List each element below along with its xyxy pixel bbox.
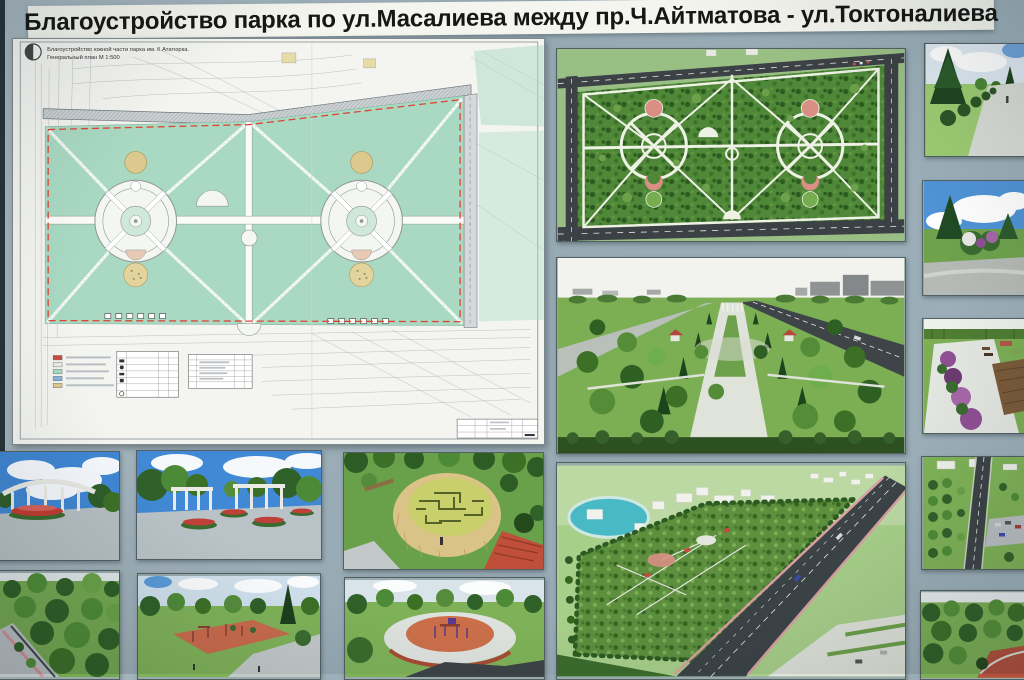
bush: [295, 630, 311, 646]
master-plan-render: [556, 48, 906, 242]
render-entrance-pergolas: [136, 450, 322, 560]
entrance-pergolas-svg: [137, 451, 321, 559]
flower-bushes-svg: [923, 181, 1024, 295]
board-edge-shadow: [0, 0, 5, 452]
legend-table-1: [117, 351, 179, 397]
general-plan-svg: Благоустройство южной части парка им. К.…: [13, 39, 544, 444]
render-aerial-corner: [0, 570, 120, 680]
walkway1-svg: [925, 44, 1024, 156]
render-aerial-road: [921, 456, 1024, 570]
sheet-header-line1: Благоустройство южной части парка им. К.…: [47, 46, 189, 53]
alley-deck-svg: [923, 319, 1024, 433]
path: [924, 257, 1024, 295]
playground2-svg: [345, 578, 544, 679]
master-plan-svg: [557, 49, 905, 241]
person: [1006, 96, 1009, 103]
axis-perspective-svg: [557, 258, 905, 453]
poster-title: Благоустройство парка по ул.Масалиева ме…: [24, 0, 998, 37]
adjacent-green-ne: [474, 45, 544, 127]
adjacent-green-e: [479, 131, 544, 322]
axis-perspective-render: [556, 257, 906, 454]
title-strip: Благоустройство парка по ул.Масалиева ме…: [28, 0, 994, 39]
render-playground-1: [137, 573, 321, 680]
aerial-overview-render: [556, 462, 906, 680]
aerial-overview-svg: [557, 463, 905, 679]
pergola-arc-svg: [0, 452, 119, 560]
aerial-road-svg: [922, 457, 1024, 569]
render-walkway-1: [924, 43, 1024, 157]
person: [440, 537, 443, 545]
bush: [976, 657, 988, 669]
labyrinth-svg: [344, 453, 543, 569]
red-path-park-svg: [921, 591, 1024, 679]
sheet-header-line2: Генеральный план М 1:500: [47, 54, 120, 61]
general-plan-sheet: Благоустройство южной части парка им. К.…: [12, 38, 545, 445]
render-flower-bushes: [922, 180, 1024, 296]
sky-strip: [921, 592, 1024, 602]
render-playground-2: [344, 577, 545, 680]
render-pergola-arc: [0, 451, 120, 561]
sky-blue-patch: [144, 576, 172, 588]
playground1-svg: [138, 574, 320, 679]
parking: [985, 515, 1024, 547]
aerial-corner-svg: [0, 571, 119, 679]
render-labyrinth: [343, 452, 544, 570]
east-road: [464, 94, 477, 328]
bench: [984, 353, 993, 356]
hedge-band: [924, 329, 1024, 339]
poster-photo: { "title": "Благоустройство парка по ул.…: [0, 0, 1024, 674]
play-circle: [384, 612, 516, 666]
legend-table-2: [188, 354, 252, 388]
title-block: [457, 419, 538, 438]
render-red-path-park: [920, 590, 1024, 680]
render-alley-deck: [922, 318, 1024, 434]
